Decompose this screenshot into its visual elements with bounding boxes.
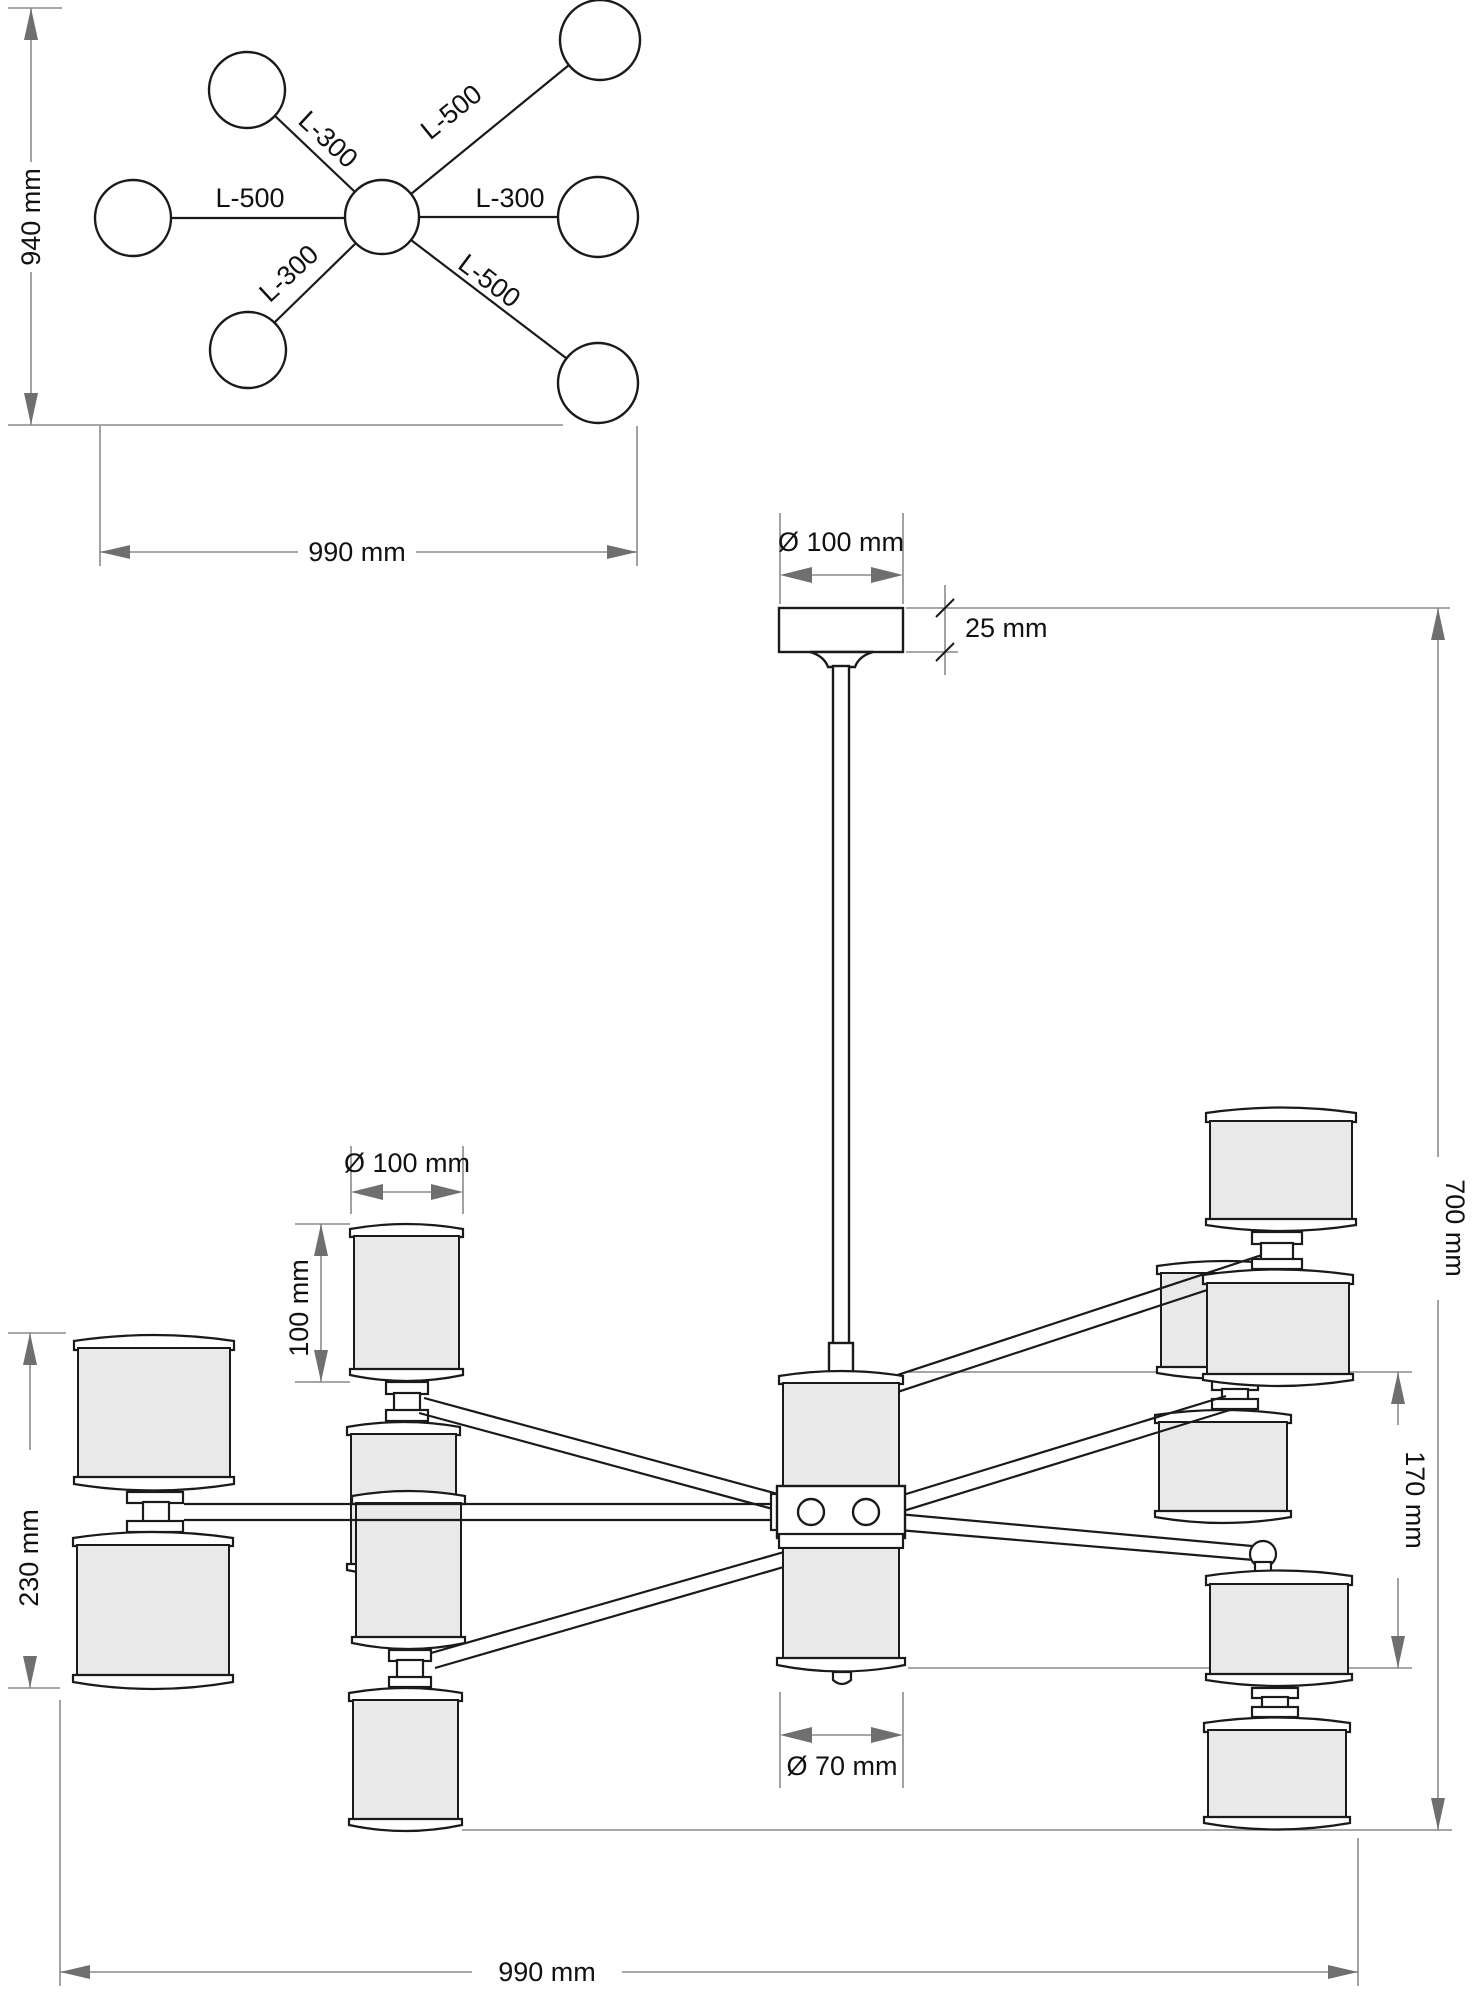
drawing-page: 940 mm L-500 L-300 L-300 L-500: [0, 0, 1481, 2000]
dim-shade-height: 100 mm: [284, 1224, 328, 1382]
shade-pair-upper-right: [1203, 1108, 1356, 1387]
top-view-shades: [95, 0, 640, 423]
rod-collar: [829, 1343, 853, 1373]
dim-label-overall-height: 700 mm: [1440, 1179, 1470, 1277]
canopy-neck: [810, 652, 873, 667]
arm-label-upper-left: L-300: [293, 105, 364, 174]
arm-label-right: L-300: [475, 183, 544, 213]
dim-overall-height: 700 mm: [1431, 608, 1470, 1830]
fixture: [73, 608, 1356, 1831]
dim-990-bottom: 990 mm: [60, 1957, 1358, 1987]
top-view: 940 mm L-500 L-300 L-300 L-500: [8, 0, 640, 567]
dim-label-shade-diameter: Ø 100 mm: [344, 1148, 470, 1178]
dim-label-canopy-diameter: Ø 100 mm: [778, 527, 904, 557]
dim-finial-diameter: Ø 70 mm: [780, 1727, 903, 1781]
finial: [833, 1672, 851, 1684]
chandelier-drawing: 940 mm L-500 L-300 L-300 L-500: [0, 0, 1481, 2000]
hanger-rod: [833, 666, 849, 1345]
side-view: Ø 100 mm 25 mm 700 mm Ø 100 mm 100 mm: [8, 513, 1470, 1987]
dim-label-940: 940 mm: [16, 168, 46, 266]
plan-shade-right: [558, 177, 638, 257]
arm-label-upper-right: L-500: [415, 79, 488, 146]
hub-socket-right: [853, 1499, 879, 1525]
plan-shade-left: [95, 180, 171, 256]
dim-side-pair-height: 230 mm: [14, 1333, 44, 1688]
dim-label-canopy-height: 25 mm: [965, 613, 1048, 643]
arm-label-left: L-500: [215, 183, 284, 213]
dim-label-shade-height: 100 mm: [284, 1259, 314, 1357]
ceiling-canopy: [779, 608, 903, 652]
plan-center-hub: [345, 180, 419, 254]
dim-canopy-diameter: Ø 100 mm: [778, 527, 904, 583]
dim-label-finial-diameter: Ø 70 mm: [786, 1751, 897, 1781]
dim-shade-diameter: Ø 100 mm: [344, 1148, 470, 1200]
shade-pair-left-lower: [349, 1491, 801, 1831]
plan-shade-upper-left: [209, 52, 285, 128]
dim-label-990-bottom: 990 mm: [498, 1957, 596, 1987]
center-cluster: [777, 1371, 905, 1684]
dim-label-side-pair-height: 230 mm: [14, 1509, 44, 1607]
plan-shade-lower-left: [210, 312, 286, 388]
dim-center-cluster-height: 170 mm: [1391, 1372, 1430, 1668]
plan-shade-upper-right: [560, 0, 640, 80]
center-hub: [777, 1486, 905, 1538]
dim-label-990-top: 990 mm: [308, 537, 406, 567]
dim-990-top: 990 mm: [100, 426, 637, 567]
dim-label-center-cluster-height: 170 mm: [1400, 1451, 1430, 1549]
hub-socket-left: [798, 1499, 824, 1525]
plan-shade-lower-right: [558, 343, 638, 423]
arm-label-lower-left: L-300: [253, 239, 324, 308]
shade-pair-lower-right: [1204, 1541, 1352, 1830]
